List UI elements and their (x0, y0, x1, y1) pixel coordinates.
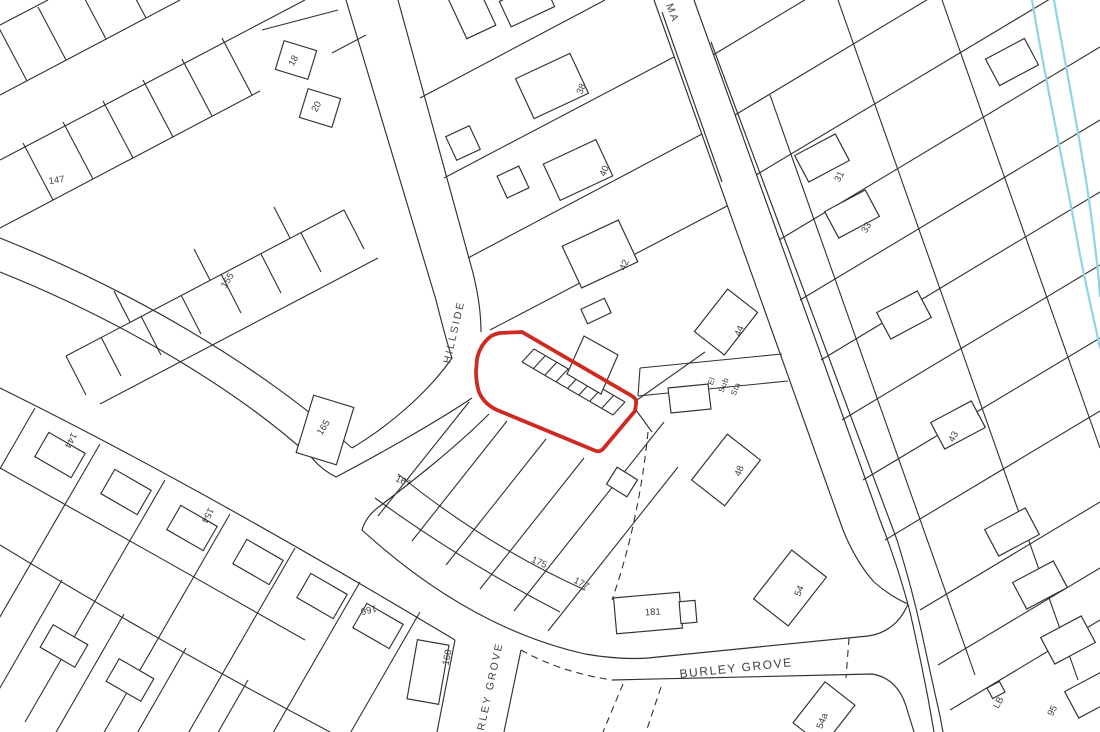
dashed-kerb (521, 650, 612, 680)
map-line (23, 143, 53, 200)
building-row-house (1041, 616, 1096, 664)
map-line (378, 402, 469, 516)
site-plan-map: HILLSIDE MA BURLEY GROVE RLEY GROVE El S… (0, 0, 1100, 732)
building-43 (931, 401, 986, 449)
map-line (66, 210, 344, 356)
road-main-west-inner (662, 12, 722, 182)
house-number-166: 166 (360, 602, 378, 616)
map-line (66, 356, 86, 395)
map-line (0, 91, 260, 228)
map-line (274, 207, 290, 238)
substation-label-sta: Sta (729, 381, 742, 397)
house-number-177: 177 (572, 575, 591, 592)
road-hillside-west-kerb (346, 0, 452, 448)
dashed-boundary (646, 687, 661, 732)
map-line (128, 0, 146, 18)
map-labels: HILLSIDE MA BURLEY GROVE RLEY GROVE El S… (48, 2, 1060, 732)
outbuilding (607, 467, 638, 497)
building-54 (754, 550, 827, 626)
road-left-curve-north-kerb (0, 238, 352, 448)
map-line (194, 249, 210, 280)
map-line (63, 122, 93, 179)
road-hillside-east-kerb (398, 0, 481, 332)
building-partial (499, 0, 554, 27)
building-row-house (101, 469, 151, 514)
map-line (0, 444, 100, 634)
map-line (446, 439, 546, 565)
map-line (114, 291, 130, 322)
house-number-31: 31 (832, 170, 847, 185)
map-line (602, 395, 614, 408)
stream-bank (1054, 0, 1100, 296)
map-line (613, 402, 625, 415)
house-number-175: 175 (530, 554, 549, 570)
road-main-east-kerb (694, 0, 934, 732)
map-line (344, 210, 364, 249)
map-line (38, 7, 66, 60)
outbuilding (581, 298, 611, 323)
map-line (545, 362, 557, 375)
road-diagonal-south-kerb (0, 388, 455, 640)
building-42 (562, 220, 638, 288)
street-label-grove-vertical: RLEY GROVE (475, 641, 505, 732)
map-line (522, 349, 534, 362)
map-line (556, 369, 568, 382)
buildings (35, 0, 1100, 732)
building-row-house (986, 38, 1039, 85)
map-line (0, 580, 62, 732)
map-line (261, 254, 281, 293)
map-line (301, 233, 321, 272)
map-line (143, 80, 173, 137)
highlighted-plot-boundary (476, 332, 636, 451)
map-line (638, 368, 640, 396)
building-row-house (233, 539, 283, 584)
stream-bank (1032, 0, 1100, 348)
house-number-147: 147 (48, 174, 65, 187)
map-line (640, 354, 782, 368)
map-line (885, 411, 1100, 540)
building-166 (297, 573, 347, 618)
building-row-house (1013, 561, 1068, 609)
building-row-house (40, 625, 88, 668)
map-line (78, 0, 106, 39)
map-line (182, 59, 212, 116)
outbuilding (446, 126, 481, 161)
house-number-95: 95 (1045, 704, 1060, 719)
substation-label-sub: Sub (717, 376, 731, 394)
building-181-annex (679, 600, 697, 623)
map-line (0, 28, 27, 81)
map-line (101, 337, 121, 376)
building-95 (1065, 670, 1100, 718)
map-line (480, 458, 584, 589)
map-line (412, 421, 507, 541)
map-line (375, 498, 560, 612)
substation-box (668, 384, 711, 413)
map-line (0, 408, 35, 512)
house-number-181: 181 (645, 606, 662, 618)
map-line (222, 38, 252, 95)
dashed-boundary (846, 638, 849, 678)
dashed-boundary (603, 684, 623, 732)
building-row-house (353, 603, 403, 648)
building-48 (692, 434, 761, 506)
map-line (533, 356, 545, 369)
map-line (262, 10, 338, 30)
map-line (103, 101, 133, 158)
road-burley-south-kerb (612, 674, 914, 732)
stream (1032, 0, 1100, 348)
building-row-house (106, 659, 154, 702)
map-line (141, 316, 161, 355)
dashed-boundary (612, 432, 648, 600)
house-number-168: 168 (441, 649, 455, 667)
map-line (0, 0, 305, 160)
map-line (100, 258, 378, 404)
map-line (842, 265, 1100, 420)
map-line (636, 410, 652, 432)
site-location-plan: HILLSIDE MA BURLEY GROVE RLEY GROVE El S… (0, 0, 1100, 732)
outbuilding (497, 166, 529, 198)
building-partial (448, 0, 496, 39)
road-grove-east-kerb (504, 650, 521, 732)
street-label-hillside: HILLSIDE (441, 299, 467, 364)
road-network (0, 0, 943, 732)
building-44 (694, 289, 757, 355)
map-line (32, 614, 124, 732)
